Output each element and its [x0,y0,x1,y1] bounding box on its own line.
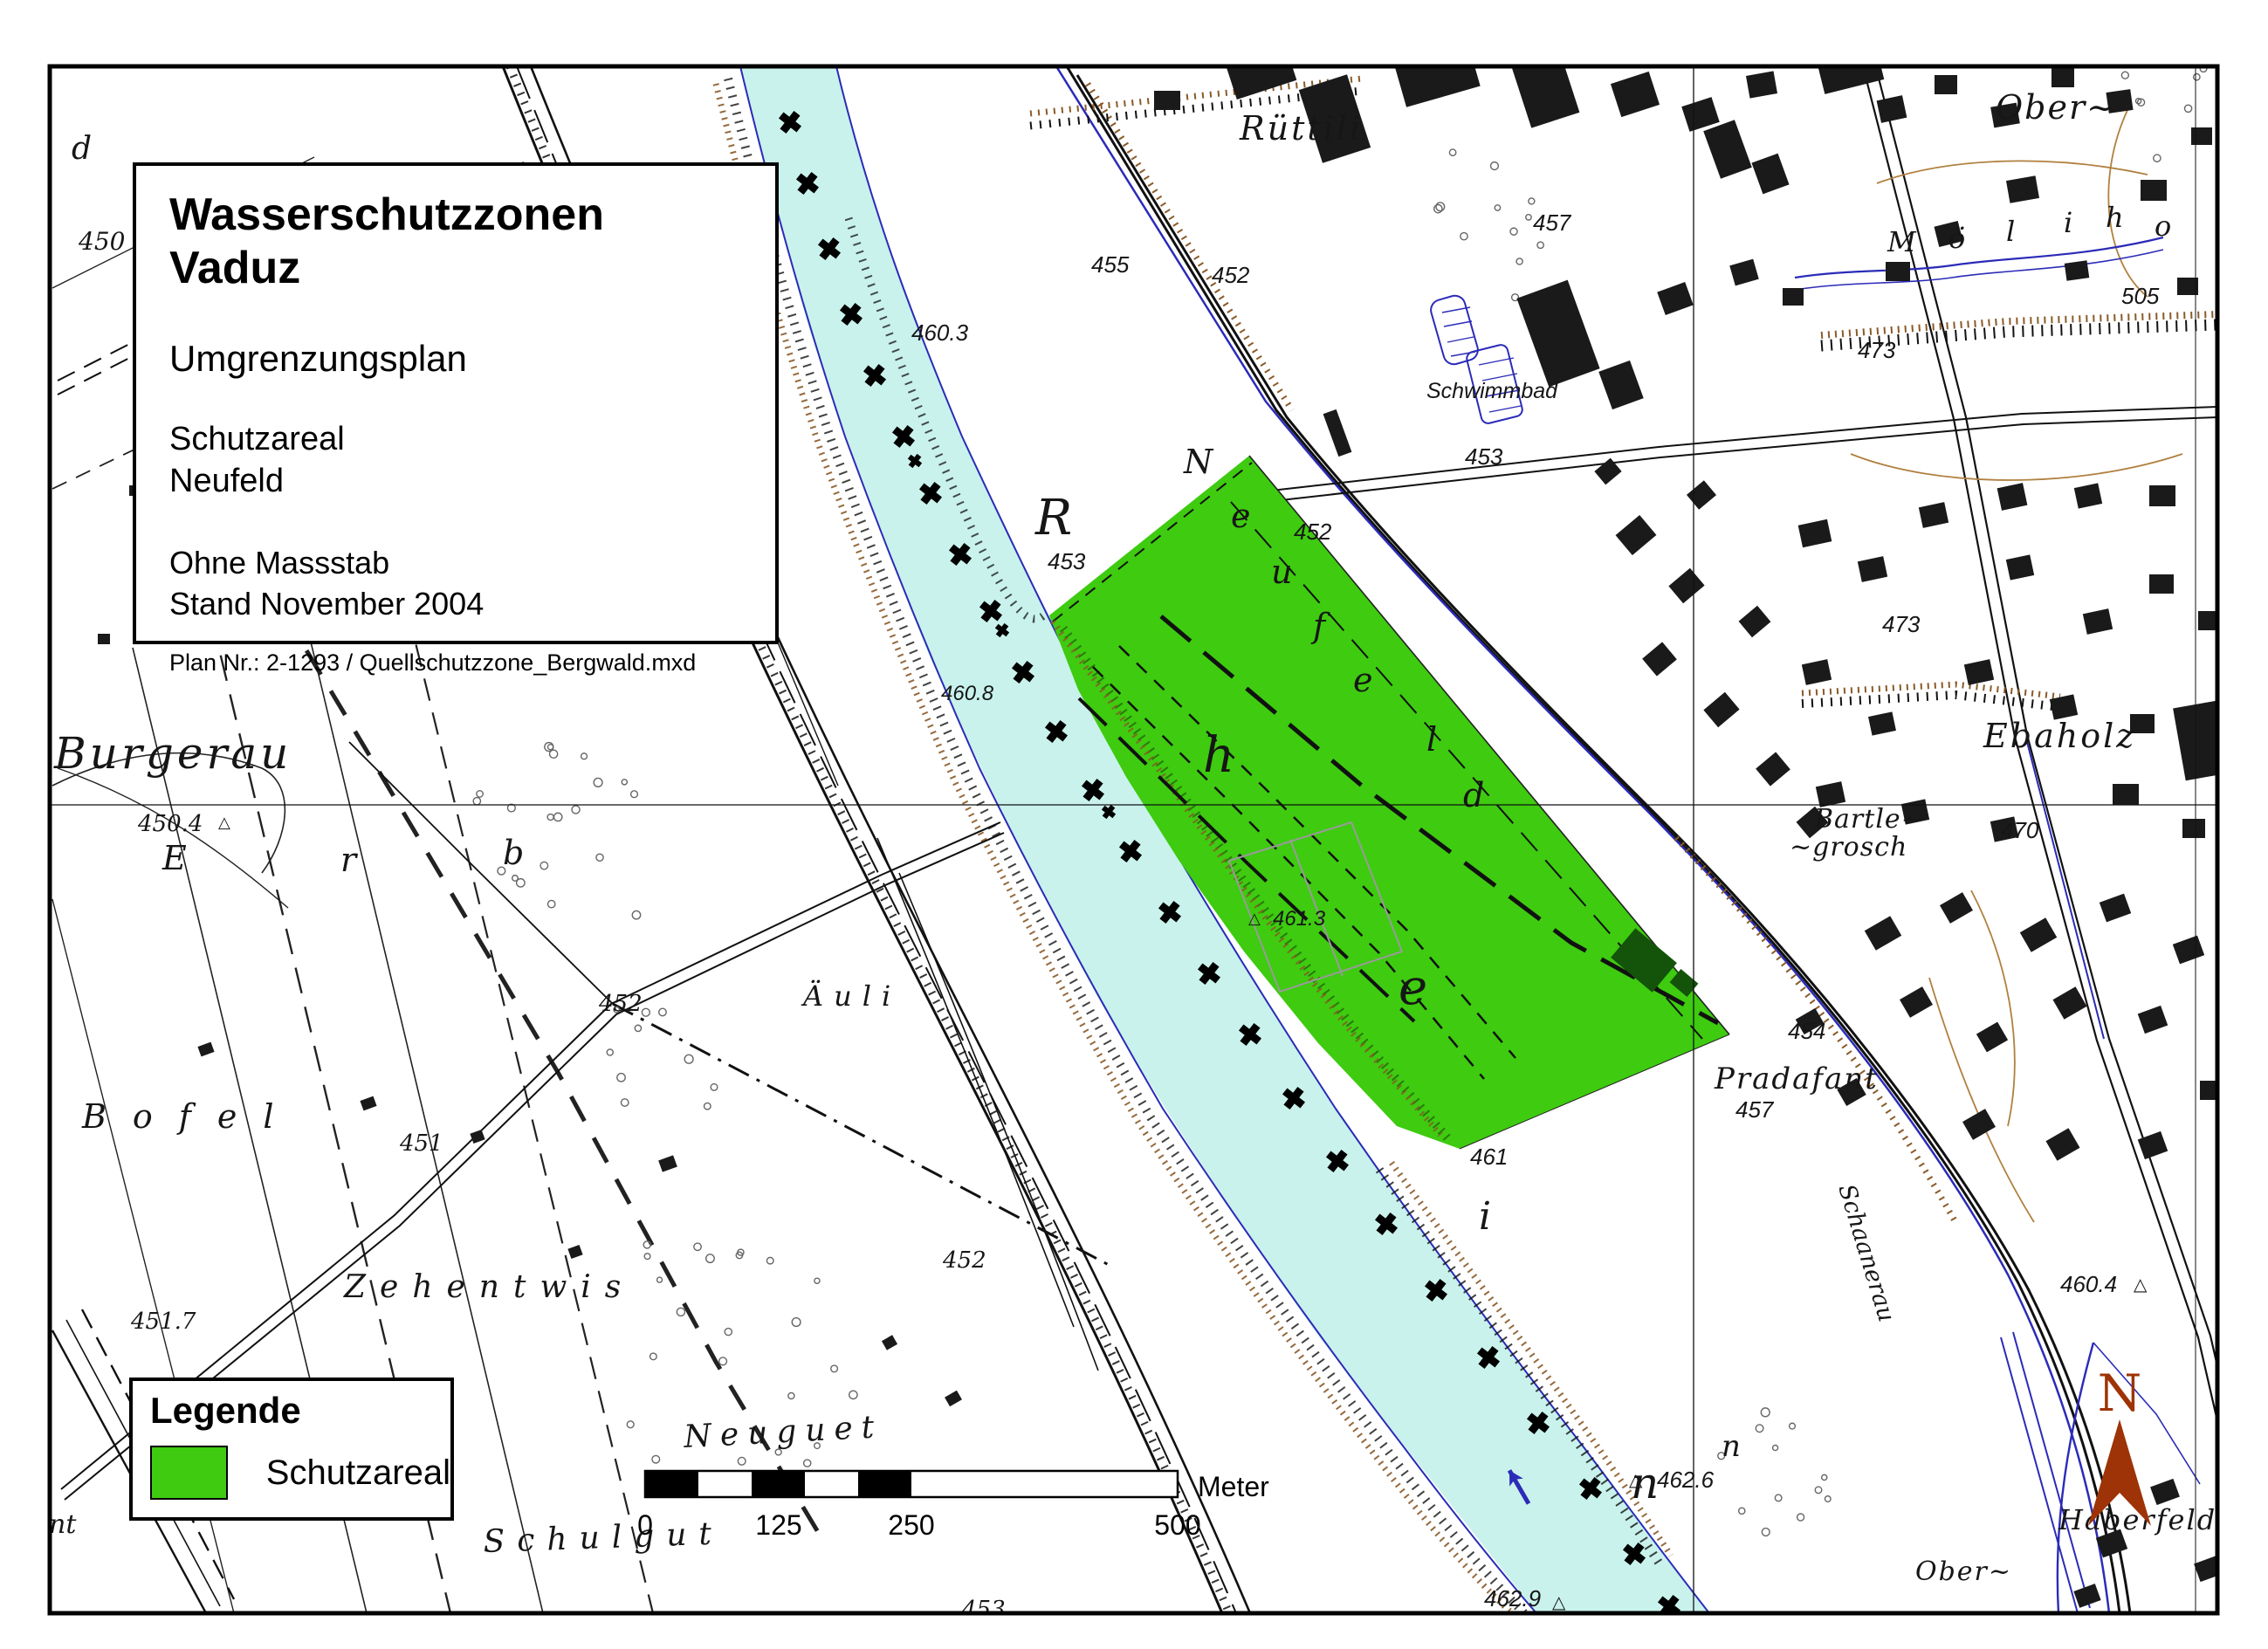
scalebar-tick: 125 [755,1509,801,1541]
map-label: 452 [1294,519,1332,545]
scalebar-tick: 500 [1154,1509,1200,1541]
map-label: N [1183,443,1214,481]
map-label: 457 [1735,1096,1775,1123]
building [2113,784,2139,805]
map-label: E [162,839,187,877]
map-label: Pradafant [1714,1062,1879,1096]
map-label: R [1034,490,1072,546]
map-label: Zehentwis [343,1269,635,1305]
map-label: M [1887,225,1917,258]
map-label: 505 [2121,283,2160,309]
legend-box: Legende Schutzareal [129,1378,454,1521]
map-label: h [2106,201,2124,234]
legend-title: Legende [150,1390,450,1432]
map-label: i [35,131,44,164]
map-label: Schwimmbad [1426,379,1558,403]
gravel-dot [2146,57,2151,62]
building [1935,75,1957,94]
map-label: △ [1248,910,1261,928]
map-label: 455 [1091,251,1130,278]
map-label: d [72,131,92,167]
title-box: Wasserschutzzonen Vaduz Umgrenzungsplan … [133,162,779,644]
map-label: b [503,834,524,872]
map-label: e [1399,959,1427,1016]
map-label: △ [1629,1469,1643,1490]
map-label: 453 [1465,443,1503,470]
building [2065,260,2090,280]
building [98,634,110,644]
map-label: 453 [1048,548,1086,574]
scalebar-unit: Meter [1198,1471,1269,1502]
map-label: ~grosch [1790,832,1907,862]
map-label: 457 [1533,210,1572,236]
map-label: o [2155,210,2171,243]
map-label: Bartle~ [1813,804,1924,835]
map-label: 452 [1212,262,1250,288]
plan-number: Plan Nr.: 2-1293 / Quellschutzzone_Bergw… [169,649,758,677]
map-label: nt [49,1509,77,1540]
map-label: 473 [1882,611,1921,637]
map-label: d [1463,776,1484,814]
building [2149,485,2175,506]
building [2191,127,2212,145]
legend-item-label: Schutzareal [266,1453,450,1493]
map-label: 473 [1858,337,1896,363]
map-label: 462.9 [1484,1585,1541,1611]
map-label: l [1426,720,1437,759]
building [2182,819,2205,838]
map-label: 450.4 [137,811,203,837]
scalebar-tick: 250 [888,1509,934,1541]
map-label: 470 [2001,817,2039,843]
map-label: 454 [1788,1018,1825,1044]
map-label: 450 [78,227,125,256]
map-label: i [1479,1194,1491,1239]
map-label: 462.6 [1657,1467,1715,1493]
building [2052,68,2074,87]
map-label: Rüttili [1239,109,1363,148]
map-label: 461.3 [1273,907,1326,931]
map-label: Ebaholz [1983,717,2136,755]
map-label: h [1203,727,1234,784]
map-label: Ober~ [1915,1556,2012,1587]
map-label: u [1271,553,1292,591]
map-label: 461 [1470,1144,1508,1170]
map-page: { "title_box": { "line1": "Wasserschutzz… [0,0,2268,1649]
map-label: Burgerau [53,728,292,779]
map-label: Bofel [81,1097,300,1136]
building [1886,262,1910,281]
map-label: ö [1948,222,1965,255]
legend-swatch [150,1446,228,1500]
map-label: △ [1552,1591,1566,1612]
map-subtitle: Umgrenzungsplan [169,338,758,380]
map-notes: Ohne Massstab Stand November 2004 [169,543,758,625]
map-label: 460.8 [941,682,994,705]
legend-item: Schutzareal [150,1446,450,1500]
map-label: 452 [942,1247,986,1274]
map-label: 460.4 [2060,1271,2117,1297]
north-label: N [2098,1364,2142,1423]
building [2141,180,2167,201]
building [2177,278,2198,295]
map-label: 451 [399,1130,443,1157]
map-label: i [2064,206,2072,239]
map-label: △ [2134,1274,2148,1295]
building [1783,288,1804,306]
map-label: e [1353,661,1373,699]
map-label: r [340,841,359,879]
building [2149,574,2174,594]
building [1746,71,1777,98]
building [1154,91,1180,110]
map-label: 453 [961,1597,1006,1623]
map-label: e [1231,497,1251,535]
scalebar-tick: 0 [637,1509,653,1541]
map-label: l [2006,215,2015,248]
map-label: △ [218,814,230,832]
map-label: n [1722,1429,1741,1464]
map-label: Äuli [801,979,901,1013]
map-label: Ober~ [1996,88,2116,127]
map-title: Wasserschutzzonen Vaduz [169,189,758,296]
map-label: 452 [598,991,643,1017]
protection-area-name: Schutzareal Neufeld [169,418,758,503]
map-label: 451.7 [130,1309,196,1335]
map-label: 460.3 [911,319,969,346]
